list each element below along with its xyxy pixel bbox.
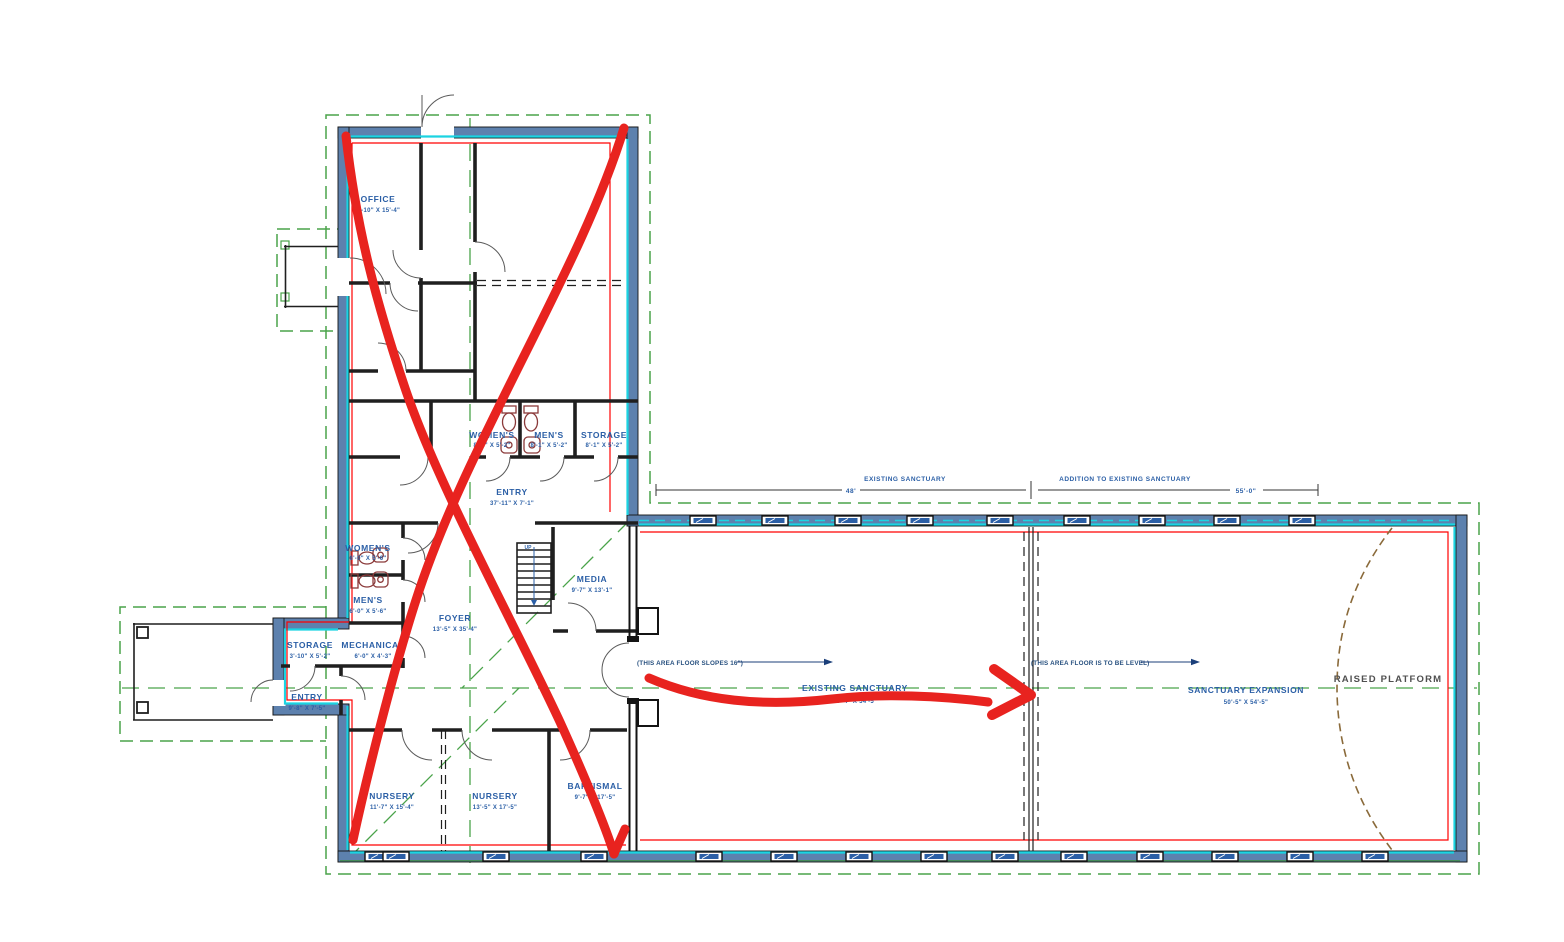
window-icon [690,516,716,525]
room-dims-mens-left: 6'-0" X 5'-6" [349,609,386,615]
floor-plan-canvas: UP EXISTING SANCTUARY 48' ADDITION TO EX… [0,0,1564,942]
dim-existing-label: EXISTING SANCTUARY [864,476,946,483]
window-icon [483,852,509,861]
room-dims-nursery-east: 13'-5" X 17'-5" [473,805,517,811]
room-dims-storage-top: 8'-1" X 5'-2" [585,443,622,449]
room-label-mechanical: MECHANICAL [341,640,404,650]
room-label-sanctuary-expansion: SANCTUARY EXPANSION [1188,685,1304,695]
stairs: UP [517,543,551,613]
room-label-mens-left: MEN'S [353,595,383,605]
window-icon [987,516,1013,525]
room-label-nursery-west: NURSERY [369,791,414,801]
window-icon [771,852,797,861]
door-arc [290,666,315,691]
room-dims-office: 9'-10" X 15'-4" [356,208,400,214]
door-arc [462,730,492,760]
door-arc [540,457,564,481]
room-label-womens-top: WOMEN'S [469,430,514,440]
door-arc [393,250,421,278]
window-icon [696,852,722,861]
room-dims-storage-left: 3'-10" X 5'-2" [290,654,331,660]
door-arc [400,457,428,485]
marker-x-stroke-1-hook [614,829,625,854]
floor-plan-drawing: UP EXISTING SANCTUARY 48' ADDITION TO EX… [0,0,1564,942]
room-label-raised-platform: RAISED PLATFORM [1334,674,1443,685]
window-icon [581,852,607,861]
room-dims-mechanical: 6'-0" X 4'-3" [354,654,391,660]
stairs-up-label: UP [525,545,533,551]
room-label-baptismal: BAPTISMAL [568,781,623,791]
door-arc [422,95,454,127]
doors [251,95,629,760]
room-label-storage-left: STORAGE [287,640,333,650]
window-icon [1064,516,1090,525]
interior-walls [133,143,1038,851]
window-icon [1289,516,1315,525]
window-icon [1362,852,1388,861]
toilet-icon [502,406,516,431]
marker-x-stroke-2 [353,128,624,840]
level-note: (THIS AREA FLOOR IS TO BE LEVEL) [1031,660,1149,667]
window-icon [1214,516,1240,525]
room-label-womens-left: WOMEN'S [345,543,390,553]
roof-overhang-lines [120,115,1479,874]
room-label-office: OFFICE [361,194,396,204]
door-arc [403,538,425,560]
window-icon [762,516,788,525]
window-icon [835,516,861,525]
room-dims-media: 9'-7" X 13'-1" [572,588,613,594]
room-dims-womens-left: 6'-0" X 5'-6" [349,556,386,562]
door-arc [568,603,596,631]
room-label-entry-top: ENTRY [496,487,528,497]
door-arc [402,730,432,760]
door-arc [486,457,510,481]
room-label-storage-top: STORAGE [581,430,627,440]
double-door-arc [602,670,629,697]
dim-addition-label: ADDITION TO EXISTING SANCTUARY [1059,476,1191,483]
window-icon [992,852,1018,861]
window-icon [1287,852,1313,861]
room-label-entry-left: ENTRY [291,692,323,702]
slope-note: (THIS AREA FLOOR SLOPES 16") [637,660,743,667]
room-label-nursery-east: NURSERY [472,791,517,801]
window-icon [383,852,409,861]
window-icon [1139,516,1165,525]
room-label-mens-top: MEN'S [534,430,564,440]
room-dims-nursery-west: 11'-7" X 15'-4" [370,805,414,811]
window-icon [1137,852,1163,861]
window-icon [907,516,933,525]
entry-porch [133,623,273,720]
room-dims-entry-top: 37'-11" X 7'-1" [490,501,534,507]
window-icon [846,852,872,861]
double-door-arc [602,643,629,670]
room-label-foyer: FOYER [439,613,471,623]
red-marker-annotations [346,128,1031,854]
room-dims-mens-top: 8'-1" X 5'-2" [530,443,567,449]
door-arc [594,457,618,481]
door-arc [475,242,505,272]
raised-platform-edge [1337,528,1392,850]
window-icon [1212,852,1238,861]
room-label-media: MEDIA [577,574,607,584]
dim-existing-value: 48' [846,488,856,495]
dimension-annotations: EXISTING SANCTUARY 48' ADDITION TO EXIST… [637,476,1318,667]
window-icon [921,852,947,861]
toilet-icon [524,406,538,431]
marker-arrow-head [992,669,1031,715]
window-icon [1061,852,1087,861]
room-dims-sanctuary-expansion: 50'-5" X 54'-5" [1224,700,1268,706]
door-arc [251,680,273,702]
room-dims-foyer: 13'-5" X 35'-4" [433,627,477,633]
room-dims-entry-left: 9'-8" X 7'-5" [288,706,325,712]
door-arc [390,283,418,311]
dim-addition-value: 55'-0" [1236,488,1257,495]
